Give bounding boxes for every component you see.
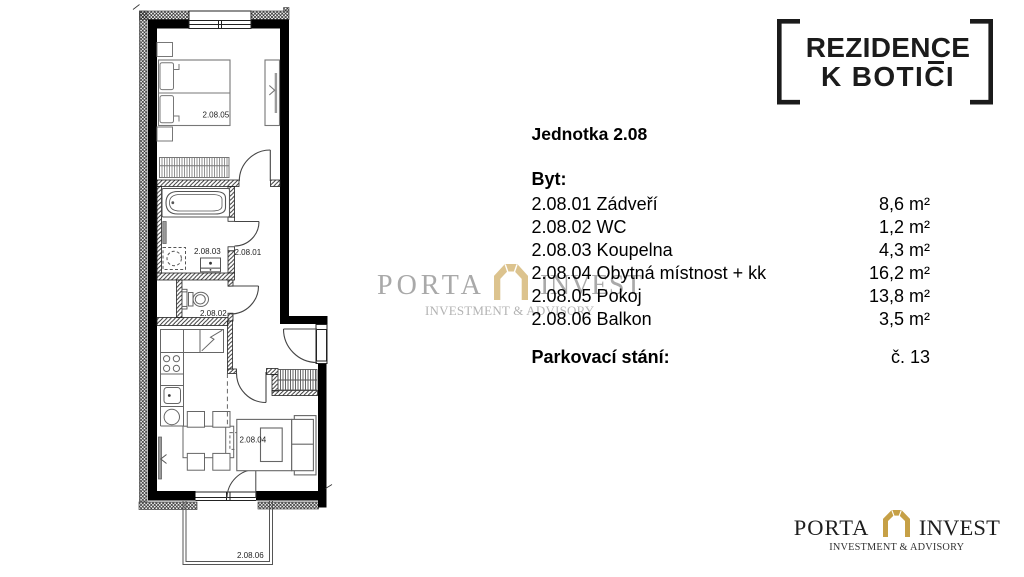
svg-text:2.08.04: 2.08.04 bbox=[240, 436, 267, 445]
svg-text:2.08.05: 2.08.05 bbox=[203, 111, 230, 120]
svg-text:2.08.01: 2.08.01 bbox=[235, 248, 262, 257]
svg-text:2.08.03: 2.08.03 bbox=[194, 247, 221, 256]
svg-text:2.08.06: 2.08.06 bbox=[237, 551, 264, 560]
svg-text:2.08.02: 2.08.02 bbox=[200, 309, 227, 318]
